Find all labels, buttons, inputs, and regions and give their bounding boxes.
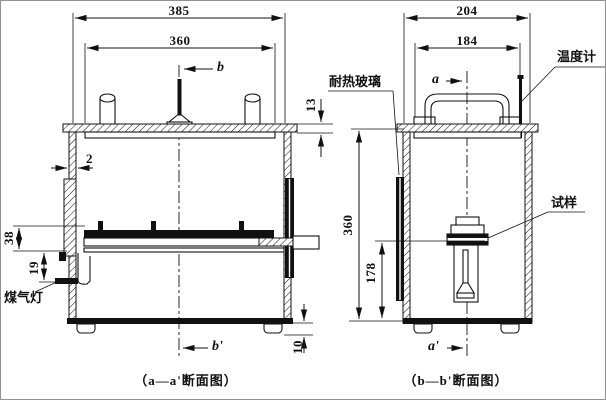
lid-left-view (63, 124, 297, 132)
floor-right-view (403, 318, 532, 324)
dim-2-label: 2 (86, 152, 93, 166)
specimen-label: 试样 (551, 196, 577, 210)
mark-b-prime-label: b' (212, 340, 223, 354)
left-view-caption: （a—a'断面图） (111, 374, 261, 388)
tray-handle (293, 236, 319, 249)
left-view (13, 13, 333, 359)
mark-a-prime-label: a' (428, 340, 439, 354)
wall-right (525, 132, 532, 323)
dim-38-label: 38 (2, 224, 16, 252)
gas-burner-label: 煤气灯 (4, 291, 43, 305)
dim-360v-label: 360 (341, 211, 355, 239)
heat-glass-label: 耐热玻璃 (329, 75, 381, 89)
wall-left (403, 132, 410, 323)
thermometer-front-icon (167, 79, 192, 127)
thermometer-label: 温度计 (557, 50, 596, 64)
foot (414, 324, 432, 333)
dim-10-label: 10 (291, 333, 305, 361)
foot (501, 324, 519, 333)
foot (77, 324, 95, 333)
mark-b-label: b (217, 61, 224, 75)
specimen-icon (447, 217, 488, 302)
technical-drawing-page: .ln{stroke:#111;stroke-width:1.1;fill:no… (0, 0, 606, 400)
label-leaders (328, 67, 605, 238)
dim-178-label: 178 (364, 259, 378, 287)
glass-window-edge (285, 178, 294, 278)
dim-360-label: 360 (152, 34, 208, 48)
mark-a-label: a (432, 73, 439, 87)
dim-184-label: 184 (439, 34, 495, 48)
foot (264, 324, 282, 333)
lid-handle-icon (414, 94, 521, 124)
dim-204-label: 204 (439, 4, 495, 18)
right-view-caption: （b—b'断面图） (381, 374, 531, 388)
lid-right-view (397, 124, 538, 132)
floor-left-view (67, 318, 293, 324)
dim-19-label: 19 (27, 254, 41, 282)
right-view (328, 13, 605, 357)
dim-13-label: 13 (304, 91, 318, 119)
dim-385-label: 385 (151, 4, 207, 18)
wall-liner (64, 179, 76, 256)
heat-glass-edge (396, 177, 404, 301)
gas-burner-icon (35, 252, 90, 292)
